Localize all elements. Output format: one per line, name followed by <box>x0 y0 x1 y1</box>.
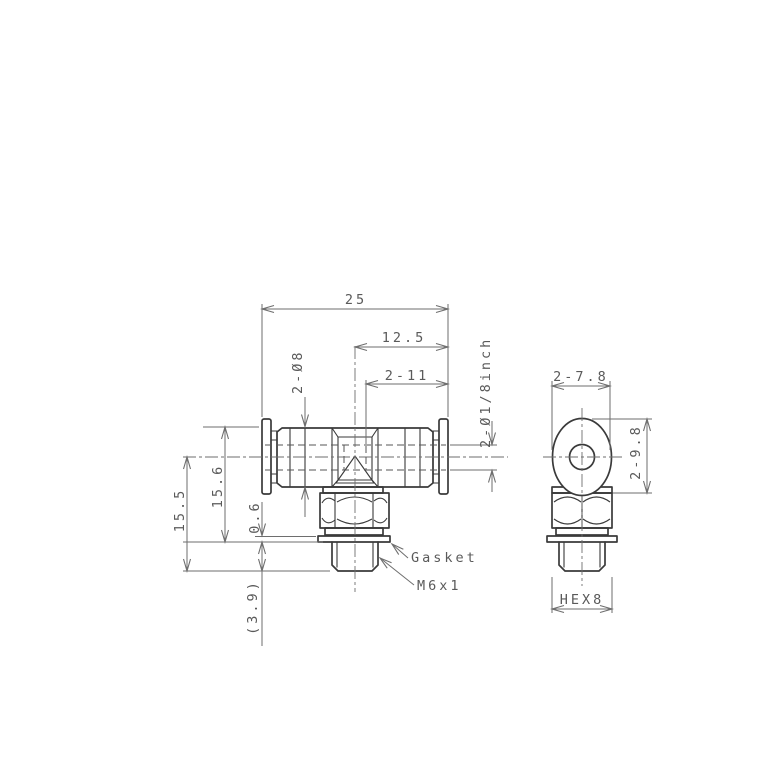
drawing-canvas: 25 12.5 2-11 2-Ø8 2-Ø1/8inch 15.6 15.5 0… <box>0 0 768 768</box>
front-right-release-ring <box>439 419 448 494</box>
dim-thread-length: (3.9) <box>245 579 261 635</box>
dim-tube-insertion-depth: 2-11 <box>385 368 430 384</box>
dim-release-ring-width: 2-7.8 <box>553 369 609 385</box>
front-hex-nut-chamfer-arcs <box>322 497 387 524</box>
label-thread-spec: M6x1 <box>417 578 462 594</box>
dim-gasket-thickness: 0.6 <box>247 500 263 533</box>
leader-thread-spec <box>380 558 414 585</box>
dim-hex-across-flats: HEX8 <box>560 592 605 608</box>
leader-gasket <box>392 544 408 558</box>
dim-center-to-thread-end: 15.5 <box>172 488 188 533</box>
front-hex-nut-facets <box>335 493 373 528</box>
dim-release-ring-height: 2-9.8 <box>628 424 644 480</box>
front-nut-collar-bottom <box>325 528 383 535</box>
dim-top-to-seat-height: 15.6 <box>210 464 226 509</box>
side-view: 2-7.8 2-9.8 HEX8 <box>543 369 652 613</box>
front-gasket-washer <box>318 536 390 542</box>
dim-overall-width: 25 <box>345 292 367 308</box>
front-left-release-ring <box>262 419 271 494</box>
dim-center-to-end: 12.5 <box>382 330 427 346</box>
technical-drawing: 25 12.5 2-11 2-Ø8 2-Ø1/8inch 15.6 15.5 0… <box>0 0 768 768</box>
dim-tube-size: 2-Ø1/8inch <box>478 337 494 448</box>
dim-body-diameter: 2-Ø8 <box>290 349 306 394</box>
front-view: 25 12.5 2-11 2-Ø8 2-Ø1/8inch 15.6 15.5 0… <box>172 292 508 646</box>
front-nut-collar-top <box>323 487 383 493</box>
label-gasket: Gasket <box>411 550 478 566</box>
